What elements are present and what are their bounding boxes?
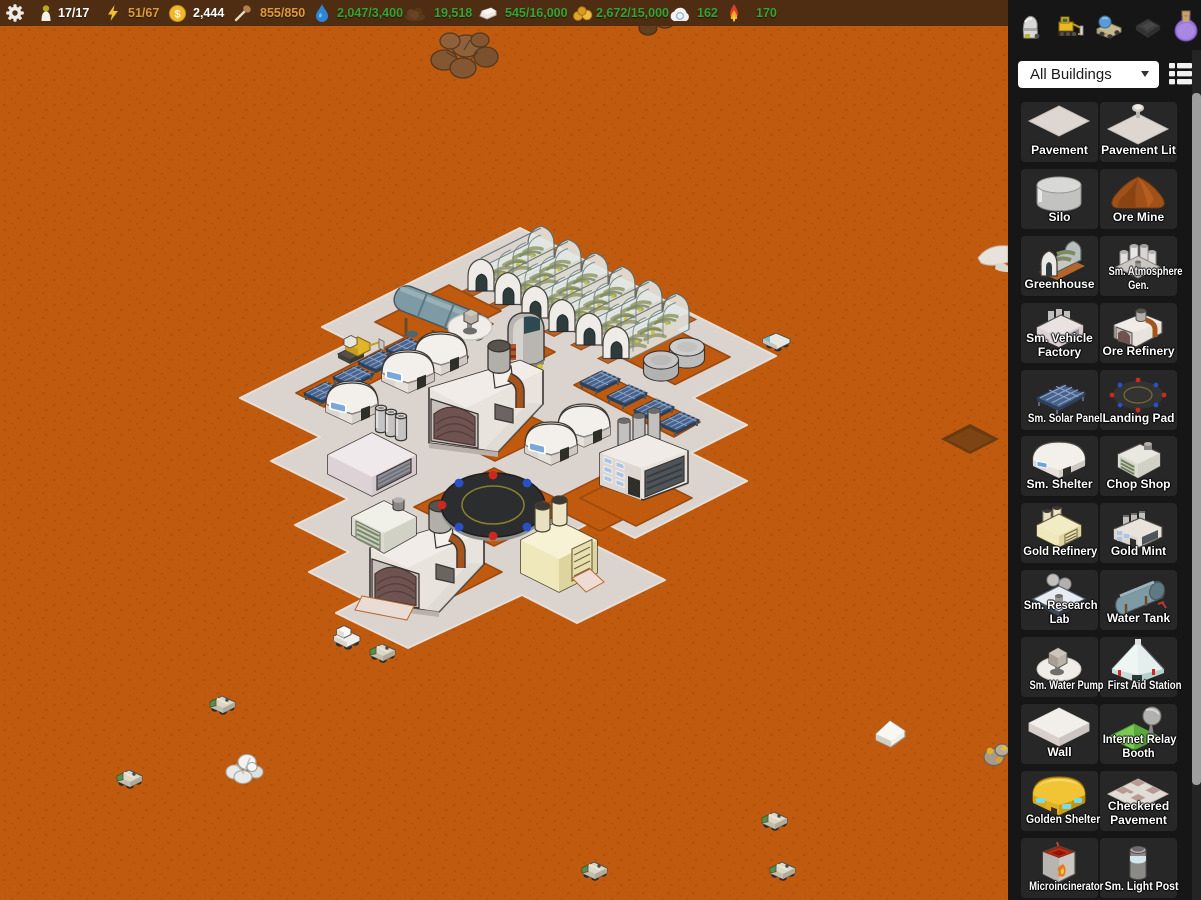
svg-text:$: $: [174, 9, 180, 21]
